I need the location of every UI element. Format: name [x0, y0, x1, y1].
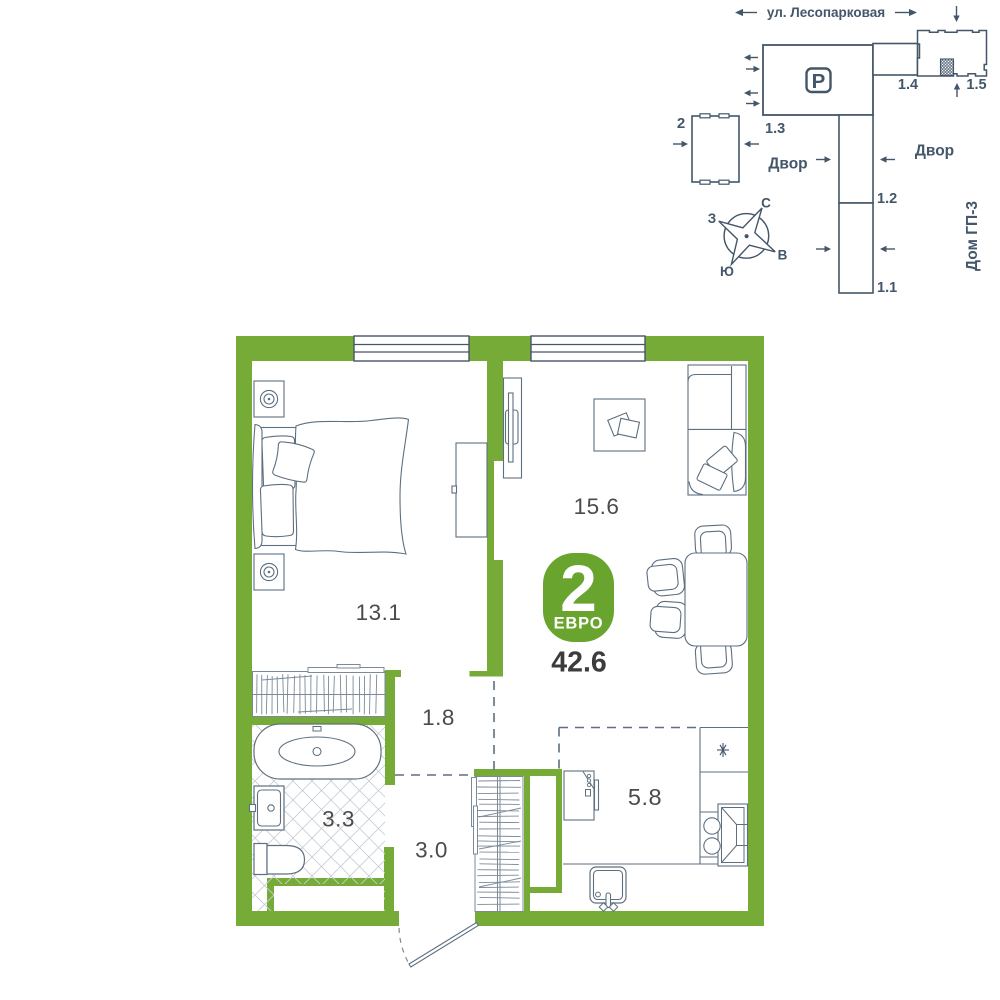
svg-text:P: P	[812, 70, 826, 93]
svg-text:2: 2	[677, 115, 685, 132]
svg-text:С: С	[761, 196, 771, 211]
svg-text:ЕВРО: ЕВРО	[554, 615, 604, 633]
svg-text:5.8: 5.8	[628, 784, 662, 810]
svg-text:1.4: 1.4	[898, 77, 918, 93]
svg-text:1.1: 1.1	[877, 280, 897, 296]
svg-text:3.0: 3.0	[415, 838, 448, 863]
svg-text:Двор: Двор	[915, 143, 954, 160]
svg-text:1.2: 1.2	[877, 191, 897, 207]
svg-text:1.8: 1.8	[422, 705, 455, 730]
svg-text:Ю: Ю	[720, 264, 734, 279]
svg-text:1.5: 1.5	[966, 77, 986, 93]
svg-text:15.6: 15.6	[574, 494, 620, 519]
svg-text:В: В	[778, 248, 788, 263]
svg-text:3.3: 3.3	[322, 807, 355, 832]
svg-text:Двор: Двор	[768, 156, 807, 173]
svg-text:1.3: 1.3	[765, 121, 785, 137]
svg-text:13.1: 13.1	[356, 600, 402, 625]
svg-text:Дом ГП-3: Дом ГП-3	[964, 201, 981, 271]
svg-text:ул. Лесопарковая: ул. Лесопарковая	[767, 5, 885, 20]
svg-text:42.6: 42.6	[551, 647, 606, 679]
svg-text:З: З	[708, 211, 716, 226]
